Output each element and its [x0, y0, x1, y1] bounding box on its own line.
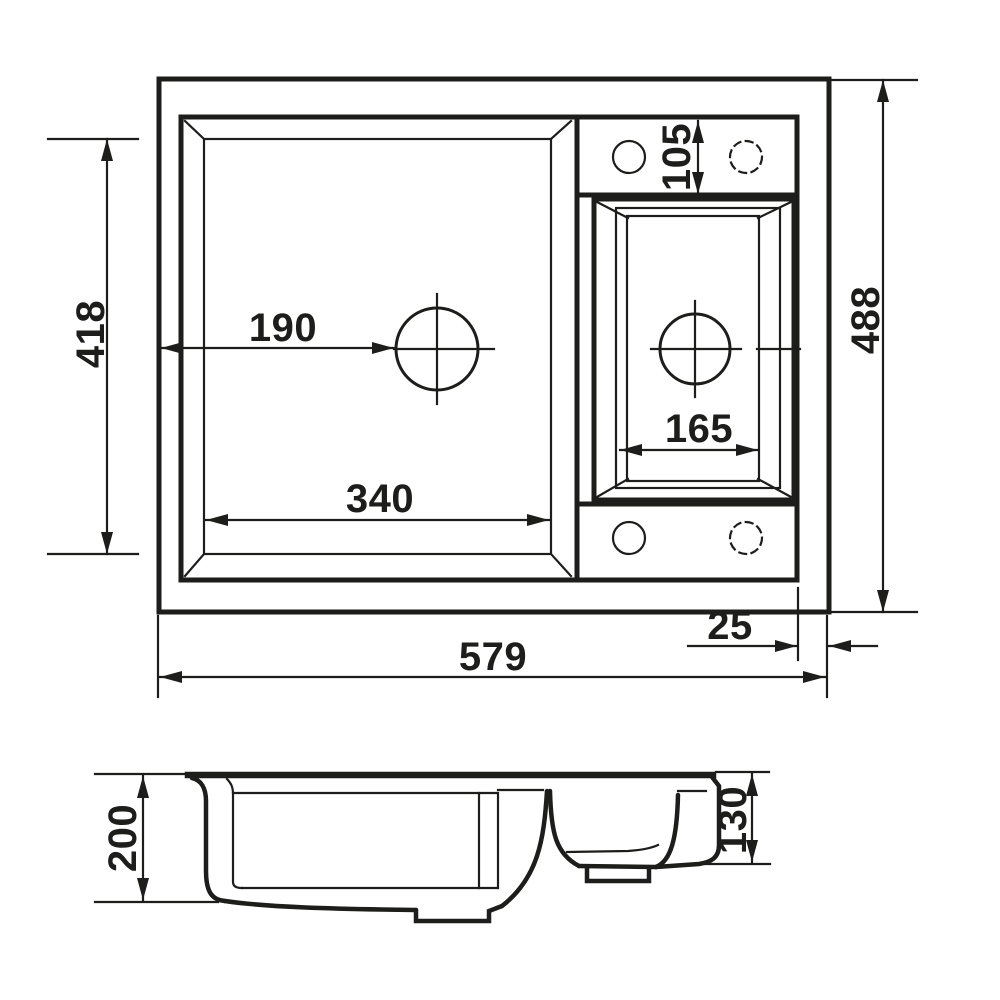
dim-right-edge-margin: 25 [688, 588, 877, 660]
tap-hole [613, 141, 645, 173]
tap-hole-optional [730, 141, 762, 173]
dim-drain-offset: 190 [161, 306, 394, 354]
dim-overall-depth: 488 [832, 80, 917, 612]
arrowhead-right-icon [803, 671, 825, 683]
dim-label-overall-depth: 488 [844, 286, 888, 354]
dim-label-small-bowl-height: 130 [711, 786, 755, 854]
side-small-bowl-floor-inner [567, 845, 658, 852]
bottom-ledge [577, 504, 797, 554]
dim-label-right-edge-margin: 25 [707, 604, 753, 648]
arrowhead-left-icon [161, 342, 183, 354]
arrowhead-right-icon [736, 444, 758, 456]
arrowhead-left-icon [160, 671, 182, 683]
side-view: 200 130 [95, 772, 770, 921]
arrowhead-right-icon [775, 640, 797, 652]
side-main-bowl-inner-wall [227, 779, 242, 888]
drawing-canvas: 190 340 165 105 [0, 0, 1000, 1000]
dim-label-small-bowl-width: 165 [665, 407, 733, 451]
arrowhead-down-icon [101, 532, 113, 554]
dim-label-main-bowl-height: 200 [101, 804, 145, 872]
bottom-hole-optional [730, 522, 762, 554]
dim-label-tap-ledge-depth: 105 [655, 123, 699, 191]
main-drain-hole [394, 294, 494, 404]
arrowhead-down-icon [877, 590, 889, 612]
arrowhead-up-icon [101, 139, 113, 161]
arrowhead-left-icon [829, 640, 851, 652]
main-bowl-bevel-tr [551, 121, 571, 139]
side-main-drain-boss [416, 906, 502, 921]
dim-label-main-bowl-depth: 418 [69, 300, 113, 368]
small-drain-hole [651, 301, 800, 397]
sink-technical-drawing: 190 340 165 105 [0, 0, 1000, 1000]
main-bowl-bevel-tl [185, 121, 204, 139]
side-divider-wall [502, 791, 547, 906]
arrowhead-right-icon [372, 342, 394, 354]
side-small-bowl-right-wall [656, 795, 678, 867]
arrowhead-left-icon [206, 514, 228, 526]
side-small-drain-boss [587, 868, 649, 881]
dim-small-bowl-height: 130 [701, 772, 770, 864]
small-bowl [594, 199, 800, 500]
arrowhead-up-icon [877, 80, 889, 102]
arrowhead-down-icon [137, 878, 149, 900]
side-small-bowl-floor-outer [579, 866, 656, 867]
arrowhead-right-icon [527, 514, 549, 526]
dim-main-bowl-height: 200 [95, 774, 218, 902]
dim-main-bowl-depth: 418 [48, 139, 138, 554]
side-outline-left-wall [192, 778, 225, 901]
small-bowl-bevel-tr [758, 202, 791, 218]
small-bowl-bevel-tl [597, 202, 628, 218]
side-small-bowl-left-wall [550, 791, 579, 866]
dim-tap-ledge-depth: 105 [655, 121, 704, 194]
main-bowl-bevel-br [551, 554, 571, 576]
main-bowl-bevel-bl [185, 554, 204, 576]
top-view: 190 340 165 105 [48, 79, 917, 697]
dim-label-overall-width: 579 [459, 635, 527, 679]
dim-small-bowl-width: 165 [620, 407, 758, 456]
arrowhead-up-icon [137, 776, 149, 798]
dim-label-main-bowl-width: 340 [346, 477, 414, 521]
arrowhead-left-icon [620, 444, 642, 456]
bottom-hole [613, 522, 645, 554]
dim-main-bowl-width: 340 [206, 477, 549, 526]
side-outline-bottom [225, 901, 416, 910]
dim-label-drain-offset: 190 [249, 306, 317, 350]
